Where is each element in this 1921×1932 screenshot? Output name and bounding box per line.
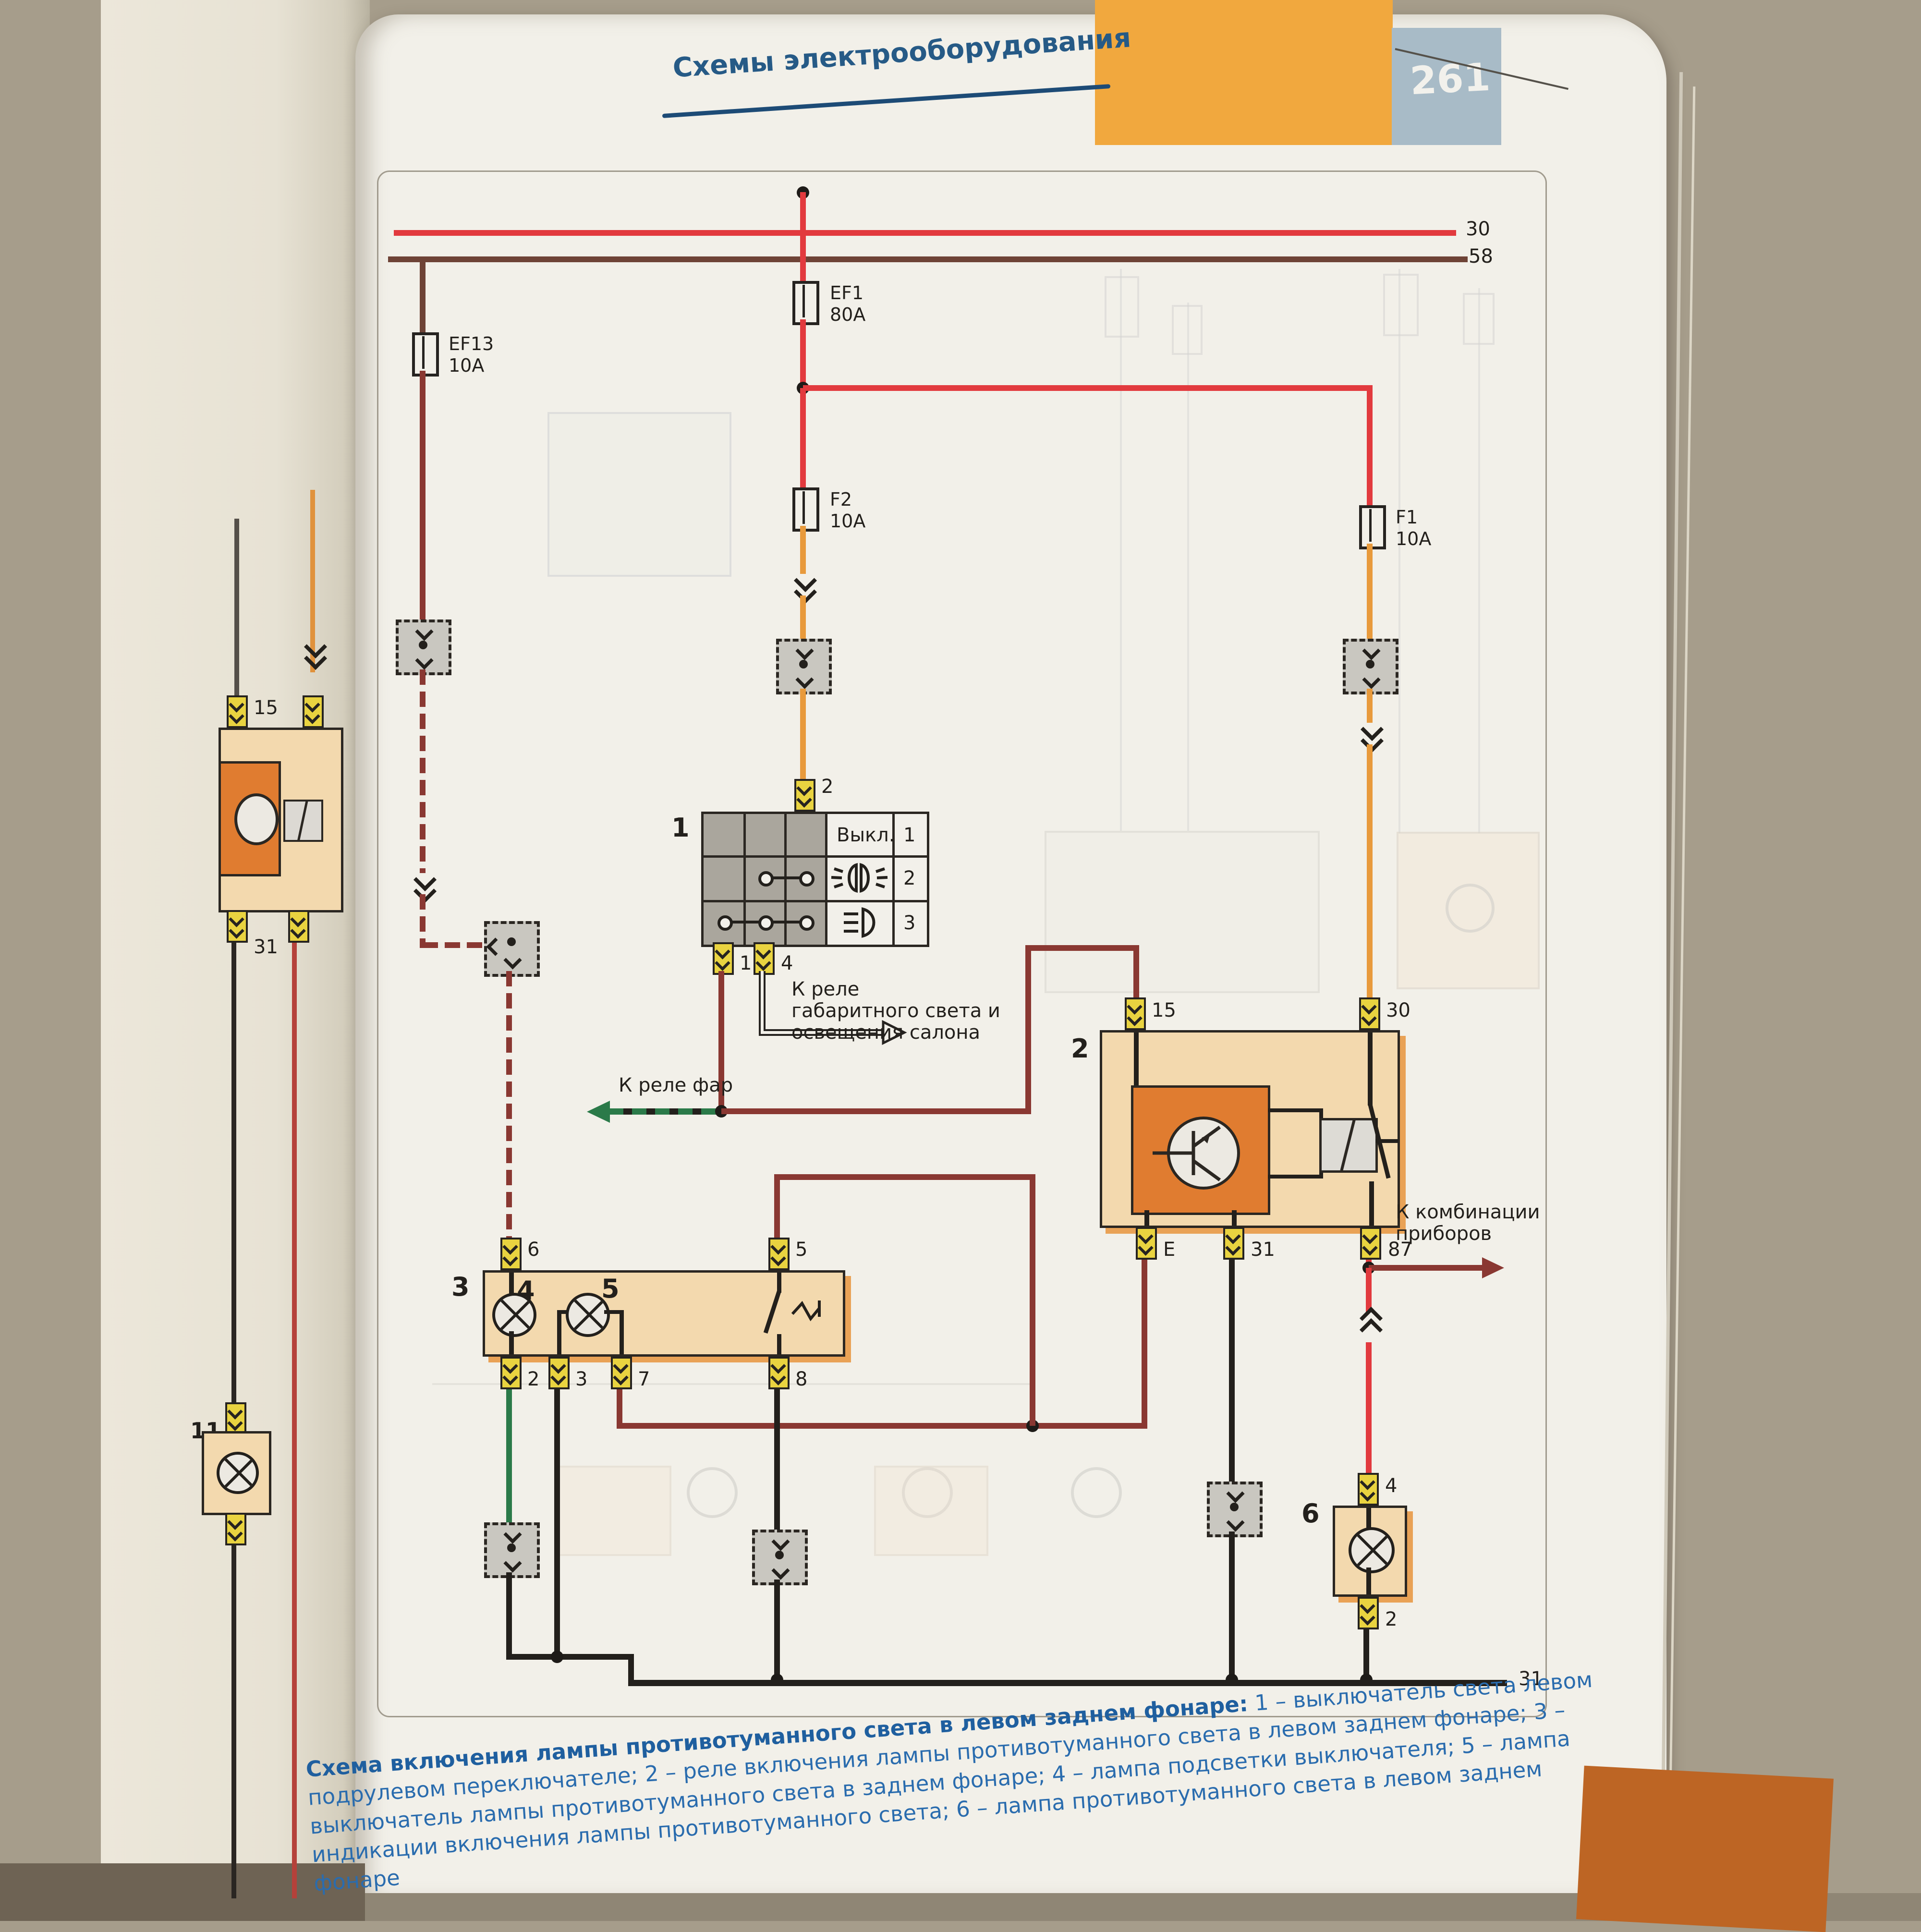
darkred-wire xyxy=(617,1389,622,1426)
wire-direction-chevron xyxy=(1359,1310,1380,1339)
connector-arrow-icon xyxy=(1226,1513,1244,1531)
connector-dot-icon xyxy=(799,660,808,668)
darkred-wire xyxy=(777,1174,1035,1180)
black-wire xyxy=(1229,1531,1235,1683)
orange-wire xyxy=(1367,544,1373,639)
terminal xyxy=(1125,997,1146,1030)
terminal xyxy=(500,1238,522,1270)
terminal xyxy=(1136,1227,1157,1260)
brown-wire xyxy=(420,262,426,332)
black-wire xyxy=(506,1654,634,1660)
c3-wire xyxy=(777,1273,781,1293)
red-wire xyxy=(1367,385,1373,505)
annotation-line: приборов xyxy=(1396,1223,1492,1245)
c1-state-off: Выкл. xyxy=(837,825,895,846)
lp-lamp-icon xyxy=(217,1452,259,1494)
lp-pin31-label: 31 xyxy=(254,936,278,958)
c1-contact xyxy=(758,871,774,887)
c6-pin2-label: 2 xyxy=(1385,1609,1397,1630)
black-wire xyxy=(554,1389,560,1660)
c1-grid-line xyxy=(784,814,787,945)
connector-arrow-icon xyxy=(415,651,433,669)
inline-connector xyxy=(396,620,451,675)
orange-wire xyxy=(800,595,806,639)
c3-wire xyxy=(509,1273,514,1296)
c2-coil-wire xyxy=(1268,1175,1322,1179)
fuse-ef13 xyxy=(412,332,439,377)
cluster-arrowhead xyxy=(1482,1257,1504,1278)
terminal xyxy=(754,942,775,975)
c1-grid-line xyxy=(825,814,827,945)
black-wire xyxy=(1229,1260,1235,1482)
inline-connector xyxy=(484,921,540,977)
annotation-marker-relay: К реле габаритного света и освещения сал… xyxy=(791,979,1000,1043)
page-number-block: 261 xyxy=(1392,28,1501,145)
cluster-arrow-line xyxy=(1369,1265,1484,1271)
c1-contact xyxy=(717,915,733,931)
darkred-wire xyxy=(1142,1260,1147,1426)
c3-wire xyxy=(620,1310,624,1354)
lamp-6-icon xyxy=(1349,1527,1395,1573)
connector-arrow-icon xyxy=(1226,1484,1244,1503)
connector-arrow-icon xyxy=(1362,670,1380,689)
darkred-dashed-wire xyxy=(506,971,512,1238)
bus-30-label: 30 xyxy=(1466,219,1490,240)
c6-wire xyxy=(1366,1508,1371,1529)
terminal xyxy=(713,942,734,975)
c2-coil-wire xyxy=(1268,1108,1322,1112)
c3-pin7-label: 7 xyxy=(638,1369,650,1390)
darkred-wire xyxy=(617,1423,1147,1429)
c1-grid-line xyxy=(704,900,927,902)
black-wire xyxy=(774,1580,780,1683)
annotation-line: К реле xyxy=(791,978,859,1000)
terminal xyxy=(288,910,309,943)
c2-pin31-label: 31 xyxy=(1251,1239,1275,1261)
terminal xyxy=(227,910,248,943)
darkred-wire xyxy=(1025,945,1031,1114)
green-dashed-wire xyxy=(609,1108,721,1115)
headlight-icon xyxy=(829,861,889,896)
orange-wire xyxy=(800,526,806,574)
c3-pin8-label: 8 xyxy=(795,1369,807,1390)
connector-arrow-icon xyxy=(503,1525,522,1543)
terminal xyxy=(548,1357,570,1389)
c3-switch-blade xyxy=(764,1290,781,1334)
terminal xyxy=(1358,1473,1379,1506)
connector-arrow-icon xyxy=(771,1532,790,1551)
c1-contact xyxy=(799,871,815,887)
c1-row-num: 1 xyxy=(903,825,915,846)
terminal xyxy=(794,779,815,812)
bus-58-wire xyxy=(388,256,1468,262)
red-wire xyxy=(800,192,806,281)
c3-number: 3 xyxy=(451,1272,470,1302)
connector-arrow-icon xyxy=(415,622,433,641)
annotation-line: габаритного света и xyxy=(791,1000,1000,1022)
component-3-switch xyxy=(483,1270,845,1357)
darkred-wire xyxy=(420,371,426,620)
connector-dot-icon xyxy=(419,641,427,649)
junction-dot xyxy=(551,1651,563,1663)
c2-wire xyxy=(1232,1210,1237,1226)
green-wire xyxy=(506,1389,512,1522)
component-2-relay xyxy=(1100,1030,1400,1228)
wire-direction-chevron xyxy=(304,639,325,668)
inline-connector xyxy=(484,1522,540,1578)
terminal xyxy=(1223,1227,1244,1260)
connector-dot-icon xyxy=(1366,660,1374,668)
fuse-f2-label: F210A xyxy=(830,489,865,532)
annotation-line: освещения салона xyxy=(791,1021,980,1044)
component-6-lamp xyxy=(1333,1506,1407,1597)
fuse-ef1 xyxy=(792,281,819,325)
c2-coil xyxy=(1319,1118,1378,1173)
c1-grid-line xyxy=(704,855,927,858)
red-wire xyxy=(1366,1342,1372,1473)
inline-connector xyxy=(776,639,832,694)
c1-contact xyxy=(758,915,774,931)
fuse-ef13-label: EF1310A xyxy=(449,333,494,377)
c2-wire xyxy=(1134,1033,1139,1086)
c1-pin-bl-label: 1 xyxy=(740,953,752,974)
connector-arrow-icon xyxy=(795,642,814,660)
terminal xyxy=(1358,1597,1379,1629)
connector-arrow-icon xyxy=(486,937,504,956)
red-wire xyxy=(800,388,806,487)
lp-black-wire xyxy=(231,1545,236,1898)
darkred-wire xyxy=(1133,945,1139,997)
orange-wire xyxy=(800,689,806,779)
connector-arrow-icon xyxy=(795,670,814,689)
annotation-line: К комбинации xyxy=(1396,1201,1540,1223)
terminal xyxy=(1359,997,1380,1030)
c2-coil-diagonal xyxy=(1340,1118,1356,1171)
c3-pin3-label: 3 xyxy=(575,1369,587,1390)
c2-wire xyxy=(1144,1210,1149,1226)
bus-30-wire xyxy=(394,230,1456,236)
lp-pin15-label: 15 xyxy=(254,697,278,719)
fuse-f1 xyxy=(1359,505,1386,549)
terminal xyxy=(768,1357,790,1389)
c6-pin4-label: 4 xyxy=(1385,1475,1397,1497)
connector-dot-icon xyxy=(775,1551,784,1559)
c3-wire xyxy=(557,1310,561,1354)
c3-wire xyxy=(777,1334,781,1354)
connector-arrow-icon xyxy=(503,1554,522,1572)
c2-pin30-label: 30 xyxy=(1386,1000,1410,1021)
annotation-cluster: К комбинации приборов xyxy=(1396,1202,1540,1245)
terminal xyxy=(303,695,324,728)
c2-transistor-box xyxy=(1131,1085,1270,1215)
darkred-wire xyxy=(774,1174,780,1238)
connector-arrow-icon xyxy=(503,951,522,969)
terminal xyxy=(1360,1227,1381,1260)
darkred-dashed-wire xyxy=(420,894,426,948)
lp-transistor-box xyxy=(219,761,281,876)
c1-contact xyxy=(799,915,815,931)
headlight-relay-arrowhead xyxy=(587,1101,610,1123)
inline-connector xyxy=(1207,1482,1263,1537)
c2-switch-wire xyxy=(1368,1033,1373,1106)
black-wire xyxy=(506,1572,512,1660)
fuse-f1-label: F110A xyxy=(1396,507,1431,550)
c3-wire xyxy=(509,1331,514,1354)
c2-switch-wire xyxy=(1369,1181,1374,1226)
lp-co xyxy=(283,800,323,842)
bus-58-label: 58 xyxy=(1469,246,1493,267)
darkred-wire xyxy=(1025,945,1139,951)
terminal xyxy=(611,1357,632,1389)
bottom-left-shadow xyxy=(0,1863,365,1921)
red-wire xyxy=(1366,1268,1372,1312)
c2-number: 2 xyxy=(1071,1033,1089,1064)
terminal xyxy=(500,1357,522,1389)
darkred-dashed-wire xyxy=(420,669,426,873)
c2-pinE-label: E xyxy=(1163,1239,1175,1261)
c2-pin15-label: 15 xyxy=(1152,1000,1176,1021)
fuse-ef1-label: EF180A xyxy=(830,282,865,326)
c6-wire xyxy=(1366,1567,1371,1594)
terminal xyxy=(225,1402,246,1435)
switch-contact-icon xyxy=(790,1298,829,1324)
lp-gray-wire xyxy=(234,519,239,695)
c3-lamp4-number: 4 xyxy=(517,1276,535,1306)
lp-red-wire xyxy=(292,943,297,1898)
fog-light-icon xyxy=(838,905,886,940)
connector-dot-icon xyxy=(507,937,516,946)
lp-black-wire xyxy=(231,943,236,1402)
c1-pin-top-label: 2 xyxy=(821,776,833,798)
connector-dot-icon xyxy=(1230,1503,1239,1511)
annotation-headlight-relay: К реле фар xyxy=(619,1075,733,1096)
fuse-f2 xyxy=(792,487,819,532)
red-wire xyxy=(800,319,806,388)
orange-wire xyxy=(1367,744,1373,997)
darkred-dashed-wire xyxy=(423,942,484,948)
transistor-lines-icon xyxy=(1148,1117,1244,1190)
inline-connector xyxy=(752,1530,808,1585)
c1-row-num: 2 xyxy=(903,868,915,889)
connector-arrow-icon xyxy=(771,1561,790,1580)
inline-connector xyxy=(1343,639,1398,694)
c3-pin6-label: 6 xyxy=(527,1239,539,1261)
lp-transistor-icon xyxy=(234,793,279,845)
terminal xyxy=(227,695,248,728)
header-orange-block xyxy=(1095,0,1393,145)
c1-row-num: 3 xyxy=(903,912,915,934)
darkred-wire xyxy=(1030,1174,1035,1426)
c6-number: 6 xyxy=(1301,1498,1320,1529)
darkred-wire xyxy=(721,1108,1031,1114)
connector-dot-icon xyxy=(507,1543,516,1552)
component-1-switch-block: Выкл. 1 2 3 xyxy=(701,812,929,947)
c3-lamp5-number: 5 xyxy=(601,1274,620,1304)
terminal xyxy=(225,1513,246,1545)
c1-grid-line xyxy=(743,814,746,945)
lp-coil-diagonal xyxy=(297,800,308,840)
c3-pin2-label: 2 xyxy=(527,1369,539,1390)
lp-relay-fragment xyxy=(219,728,343,912)
c3-pin5-label: 5 xyxy=(795,1239,807,1261)
red-wire xyxy=(803,385,1370,391)
terminal xyxy=(768,1238,790,1270)
lp-lamp-box xyxy=(202,1431,271,1515)
connector-arrow-icon xyxy=(1362,642,1380,660)
black-wire xyxy=(774,1389,780,1530)
c1-number: 1 xyxy=(671,813,690,843)
